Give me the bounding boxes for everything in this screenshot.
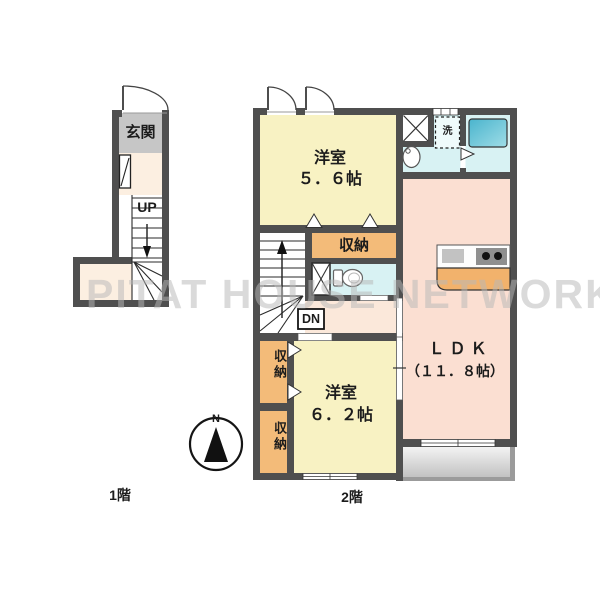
entrance-label: 玄関 [119,124,162,141]
burner-icon [482,252,490,260]
bedroom-bottom-door-opening [298,334,332,341]
bathtub-icon [469,119,507,147]
compass-icon [190,418,242,470]
floorplan-page: 玄関 UP 洋室 ５．６帖 収納 ＬＤＫ （１１．８帖） 洋室 ６．２帖 収納 … [0,0,600,600]
bedroom-top-door-arc-1 [268,87,296,110]
stove-icon [476,248,507,265]
storage-lower-label: 収納 [262,421,286,453]
ldk-size: （１１．８帖） [398,363,512,379]
bedroom-top-size: ５．６帖 [275,171,385,189]
burner-icon [494,252,502,260]
window-top [433,109,458,116]
window-bottom [303,474,357,480]
entrance-closet-door [120,155,131,188]
washbasin-icon [403,147,420,168]
floor2-label: 2階 [332,489,372,505]
bedroom-bottom-size: ６．２帖 [286,407,396,425]
balcony-floor [403,447,510,477]
washer-label: 洗 [436,126,459,138]
stairs-up-label: UP [133,199,161,215]
compass-north-label: N [205,413,227,426]
bedroom-top-door-arc-2 [306,87,334,110]
sink-icon [442,249,464,263]
ldk-name: ＬＤＫ [412,341,508,359]
pipe-shaft-top [403,115,428,141]
door-arcs [123,86,334,110]
watermark-text: PITAT HOUSE NETWORK [86,271,600,318]
floor1-label: 1階 [100,487,140,503]
storage-upper-label: 収納 [262,349,286,381]
balcony-sliding-door [421,440,495,447]
entrance-door-arc [123,86,168,110]
bedroom-top-name: 洋室 [280,150,380,168]
hall-storage-label: 収納 [312,237,396,254]
bedroom-bottom-name: 洋室 [291,385,391,403]
